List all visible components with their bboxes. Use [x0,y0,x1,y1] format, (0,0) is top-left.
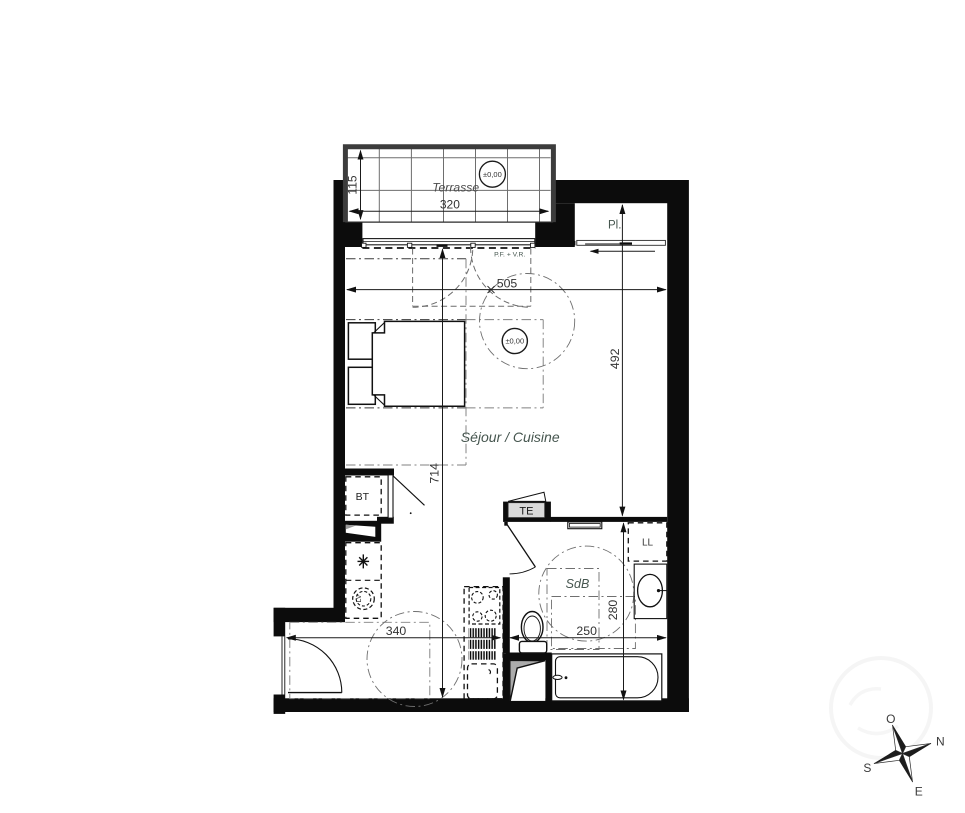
svg-text:714: 714 [428,463,442,484]
svg-text:280: 280 [606,600,620,621]
svg-text:LV: LV [356,594,363,602]
svg-text:115: 115 [346,175,360,194]
svg-text:TE: TE [519,506,533,518]
svg-text:320: 320 [440,197,460,211]
svg-text:492: 492 [608,348,622,369]
svg-text:340: 340 [386,624,407,638]
svg-text:E: E [915,784,923,798]
svg-text:N: N [936,735,945,749]
svg-text:Séjour / Cuisine: Séjour / Cuisine [461,429,560,445]
svg-text:BT: BT [356,491,370,503]
svg-text:Terrasse: Terrasse [432,180,479,194]
svg-text:505: 505 [497,277,518,291]
svg-text:P.F. + V.R.: P.F. + V.R. [494,252,525,259]
svg-text:Pl.: Pl. [608,219,621,231]
svg-text:O: O [886,712,895,726]
svg-text:S: S [863,761,871,775]
svg-text:±0,00: ±0,00 [505,337,524,346]
svg-text:LL: LL [642,538,654,549]
svg-text:SdB: SdB [566,577,590,591]
svg-text:250: 250 [576,624,597,638]
svg-text:±0,00: ±0,00 [483,170,502,179]
